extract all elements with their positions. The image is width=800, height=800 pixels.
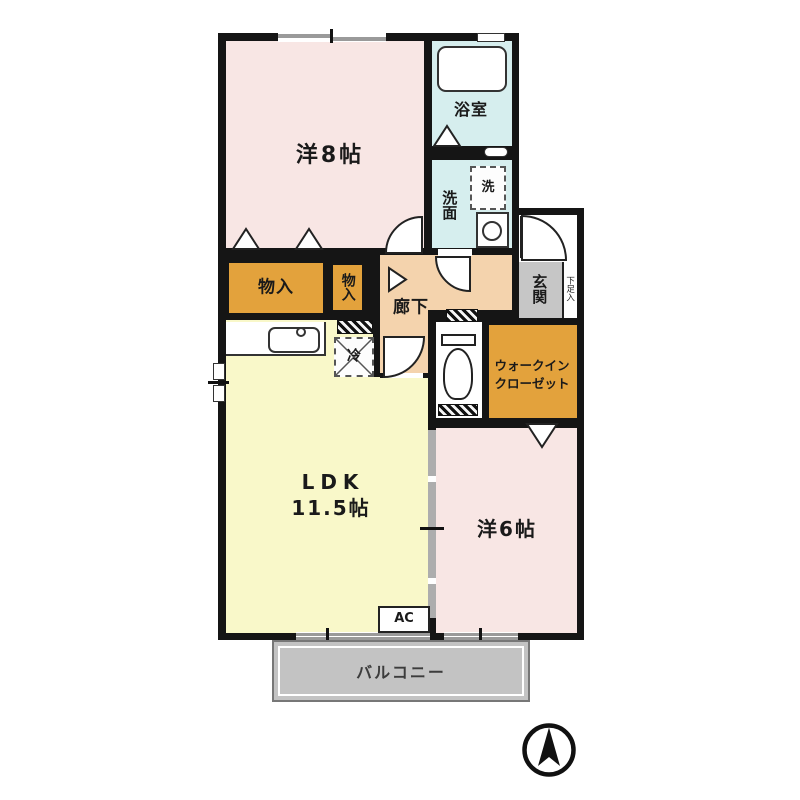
top-window-bar-1 <box>278 34 333 38</box>
front-door-leaf <box>520 216 523 258</box>
sliding-partition-tick <box>420 527 444 530</box>
refrigerator-label: 冷 <box>347 349 361 364</box>
room-western8-label: 洋8帖 <box>296 144 364 168</box>
walk-in-closet-label-line2: クローゼット <box>494 377 569 391</box>
room-western6-label: 洋6帖 <box>477 518 537 540</box>
left-window-tick <box>208 381 229 384</box>
sliding-partition-gap-1 <box>428 476 436 482</box>
sliding-partition <box>428 430 436 618</box>
balcony-door-ldk-bar-1 <box>296 633 430 636</box>
room-washroom-label: 洗面 <box>441 190 458 220</box>
left-window-pane-2 <box>213 385 225 402</box>
room-bath-label: 浴室 <box>454 101 488 119</box>
bath-wall-window <box>484 147 508 157</box>
toilet-bowl-icon <box>443 348 473 400</box>
toilet-tank-icon <box>441 334 476 346</box>
wall-corridor-ldk <box>373 320 380 377</box>
top-window-tick <box>330 29 333 43</box>
washbasin-bowl-icon <box>482 221 502 241</box>
sliding-partition-gap-2 <box>428 578 436 584</box>
kitchen-sink-icon <box>268 327 320 353</box>
left-window-pane-1 <box>213 363 225 380</box>
room-ldk-size-label: 11.5帖 <box>291 497 370 519</box>
bathtub-icon <box>437 46 507 92</box>
top-window-bar-2 <box>331 37 386 41</box>
storage-right-label: 物入 <box>339 273 354 301</box>
entry-vestibule <box>519 215 577 262</box>
corridor-ldk-threshold <box>385 373 423 378</box>
bath-top-window <box>477 33 505 42</box>
north-compass-icon <box>520 721 578 779</box>
room-ldk-label: LDK <box>302 471 365 493</box>
kitchen-faucet-icon <box>296 327 306 337</box>
washroom-threshold <box>438 249 472 256</box>
sliding-door-hatch-toilet-top <box>446 309 478 322</box>
storage-left-label: 物入 <box>258 279 294 298</box>
sliding-door-hatch-kitchen <box>337 320 373 334</box>
washing-machine-label: 洗 <box>481 181 494 195</box>
corridor-label: 廊下 <box>393 299 429 318</box>
shoe-storage-label: 下足入 <box>564 276 573 302</box>
air-conditioner-label: AC <box>394 612 414 626</box>
floor-plan: 洋8帖 浴室 洗面 洗 物入 物入 廊下 玄関 下足入 ウォークイン クローゼッ… <box>0 0 800 800</box>
balcony-label: バルコニー <box>356 664 446 682</box>
walk-in-closet-label-line1: ウォークイン <box>494 359 569 373</box>
sliding-door-hatch-toilet-bottom <box>438 404 478 416</box>
entrance-label: 玄関 <box>531 274 548 304</box>
